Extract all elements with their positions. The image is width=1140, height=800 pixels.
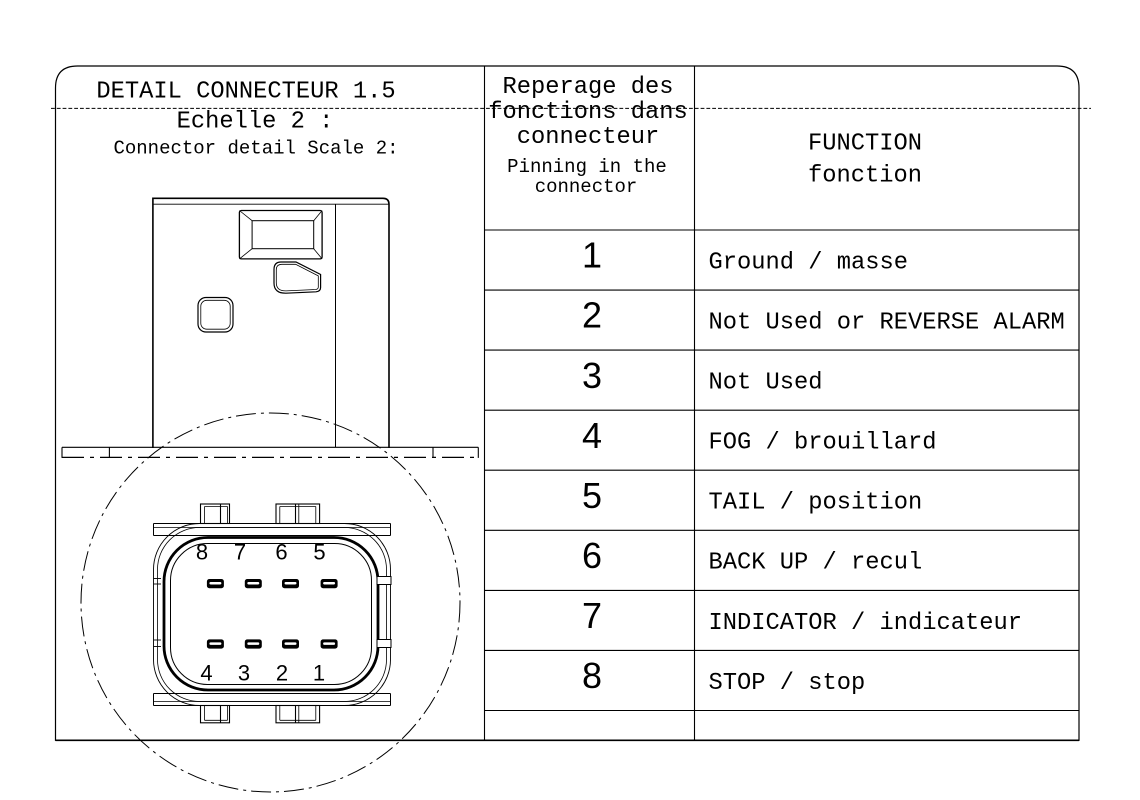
svg-text:Echelle 2 :: Echelle 2 : bbox=[177, 108, 334, 135]
svg-text:Not Used or REVERSE ALARM: Not Used or REVERSE ALARM bbox=[709, 310, 1065, 337]
svg-text:TAIL / position: TAIL / position bbox=[709, 490, 923, 517]
svg-text:FUNCTION: FUNCTION bbox=[808, 131, 922, 158]
svg-text:Reperage des: Reperage des bbox=[502, 74, 673, 101]
svg-text:fonction: fonction bbox=[808, 163, 922, 190]
svg-text:6: 6 bbox=[275, 540, 287, 565]
svg-text:Pinning in the: Pinning in the bbox=[507, 156, 667, 178]
svg-text:8: 8 bbox=[582, 655, 602, 696]
svg-text:7: 7 bbox=[582, 595, 602, 636]
svg-text:5: 5 bbox=[582, 475, 602, 516]
svg-text:DETAIL CONNECTEUR 1.5: DETAIL CONNECTEUR 1.5 bbox=[96, 79, 395, 106]
svg-text:7: 7 bbox=[234, 540, 246, 565]
svg-text:2: 2 bbox=[276, 661, 288, 686]
svg-text:5: 5 bbox=[313, 540, 325, 565]
svg-text:fonctions dans: fonctions dans bbox=[488, 99, 688, 126]
svg-text:8: 8 bbox=[196, 540, 208, 565]
svg-text:INDICATOR / indicateur: INDICATOR / indicateur bbox=[709, 610, 1023, 637]
svg-text:3: 3 bbox=[238, 661, 250, 686]
svg-text:Not Used: Not Used bbox=[709, 370, 823, 397]
svg-text:Connector detail Scale 2:: Connector detail Scale 2: bbox=[113, 138, 398, 160]
svg-text:1: 1 bbox=[582, 235, 602, 276]
svg-text:6: 6 bbox=[582, 535, 602, 576]
svg-text:STOP / stop: STOP / stop bbox=[709, 670, 866, 697]
svg-text:4: 4 bbox=[582, 415, 602, 456]
svg-text:connecteur: connecteur bbox=[517, 124, 660, 151]
svg-text:3: 3 bbox=[582, 355, 602, 396]
svg-text:2: 2 bbox=[582, 295, 602, 336]
svg-text:1: 1 bbox=[313, 661, 325, 686]
svg-text:FOG / brouillard: FOG / brouillard bbox=[709, 430, 937, 457]
svg-text:BACK UP / recul: BACK UP / recul bbox=[709, 550, 923, 577]
svg-text:Ground / masse: Ground / masse bbox=[709, 249, 909, 276]
svg-text:connector: connector bbox=[535, 176, 638, 198]
svg-text:4: 4 bbox=[200, 661, 212, 686]
